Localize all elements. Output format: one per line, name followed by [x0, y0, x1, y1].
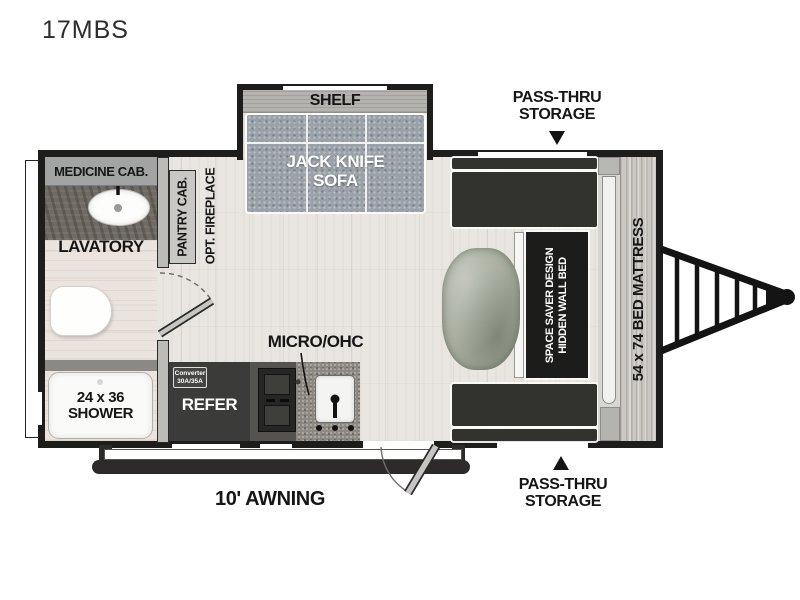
entry-door [381, 446, 436, 493]
bathroom-door [160, 273, 212, 334]
hitch-frame [661, 249, 795, 351]
hitch-ball [779, 289, 795, 305]
bathroom-faucet [114, 186, 122, 212]
kitchen-faucet [296, 380, 355, 432]
micro-leader-line [301, 353, 309, 395]
shower-drain [97, 379, 103, 385]
floorplan-canvas: 17MBS SHELF JACK KNIFE SOFA MEDICINE CAB… [0, 0, 800, 600]
overlay-graphics [0, 0, 800, 600]
